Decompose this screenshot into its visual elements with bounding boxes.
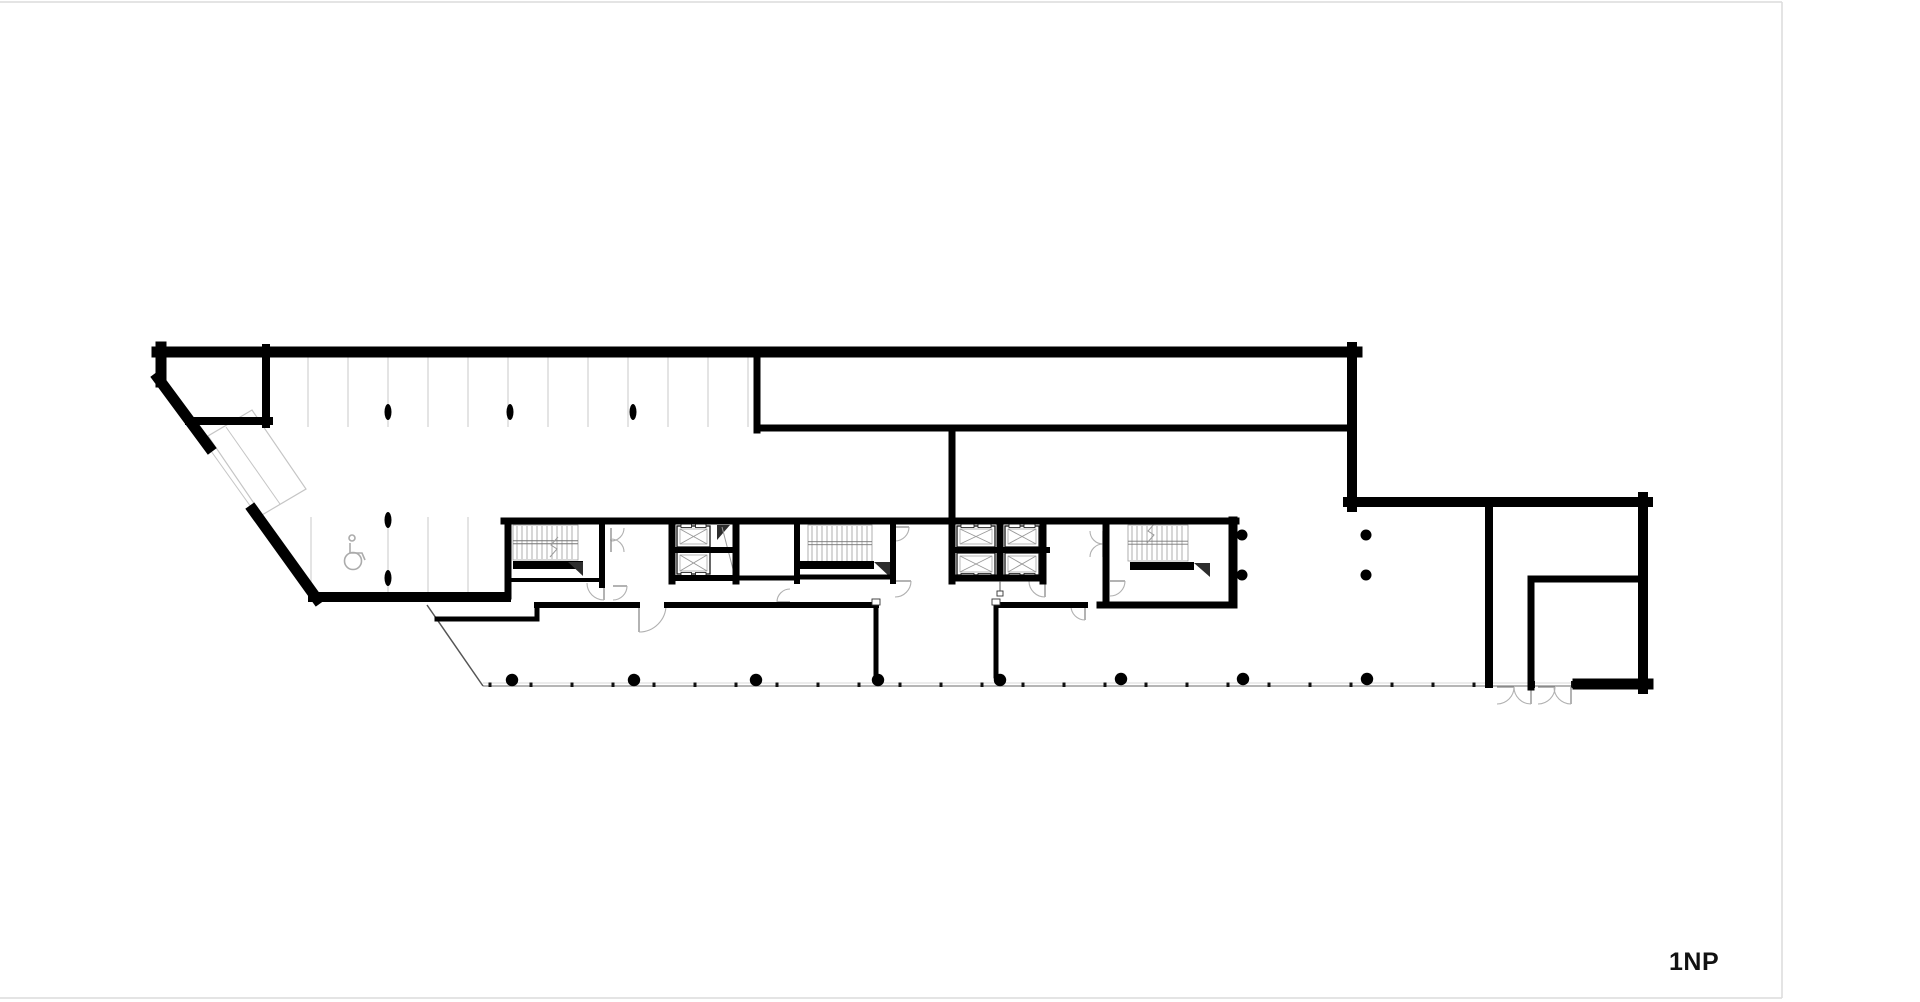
door-swing-arc — [1554, 687, 1571, 704]
facade-mullion-tick — [1391, 683, 1394, 688]
door-swing-arc — [639, 605, 666, 632]
door-swing-arc — [1071, 606, 1085, 620]
facade-mullion-tick — [530, 683, 533, 688]
facade-mullion-tick — [1022, 683, 1025, 688]
interior-column — [1237, 530, 1248, 541]
elevator-shaft — [957, 553, 995, 578]
facade-column — [1237, 673, 1249, 685]
stair-cut-band — [797, 561, 874, 569]
facade-mullion-tick — [1432, 683, 1435, 688]
facade-mullion-tick — [858, 683, 861, 688]
parking-column — [385, 512, 392, 528]
wall-end-post — [872, 599, 880, 605]
parking-column — [507, 404, 514, 420]
wall-segment — [158, 378, 209, 447]
door — [1554, 687, 1571, 704]
facade-column — [1115, 673, 1127, 685]
door-swing-arc — [895, 527, 909, 541]
door — [1497, 687, 1514, 704]
interior-column — [1237, 570, 1248, 581]
facade-column — [750, 674, 762, 686]
wheelchair-body — [350, 543, 365, 560]
facade-mullion-tick — [981, 683, 984, 688]
door-swing-arc — [1090, 544, 1103, 557]
stair-direction-wedge — [1194, 563, 1210, 577]
elevator-shaft — [677, 524, 710, 548]
facade-column — [994, 674, 1006, 686]
door — [777, 589, 790, 602]
elevator-shaft — [677, 552, 710, 577]
ramp-opening-line — [206, 444, 256, 514]
door — [1071, 606, 1085, 620]
door-swing-arc — [613, 586, 627, 600]
facade-mullion-tick — [899, 683, 902, 688]
stair-core — [1128, 525, 1188, 561]
floor-plan-drawing — [0, 0, 1920, 1002]
facade-mullion-tick — [1473, 683, 1476, 688]
facade-mullion-tick — [1227, 683, 1230, 688]
door — [639, 605, 666, 632]
stair-core — [513, 525, 578, 560]
facade-mullion-tick — [489, 683, 492, 688]
wheelchair-head — [349, 535, 355, 541]
facade-mullion-tick — [1268, 683, 1271, 688]
wheelchair-accessible-icon — [345, 535, 366, 570]
elevator-shaft — [957, 524, 995, 548]
facade-mullion-tick — [735, 683, 738, 688]
door — [895, 581, 911, 597]
door — [1538, 687, 1555, 704]
door-swing-arc — [1090, 531, 1103, 544]
door-swing-arc — [1538, 687, 1555, 704]
facade-column — [872, 674, 884, 686]
stair-outline — [808, 525, 872, 562]
door — [613, 586, 627, 600]
ramp-layer — [206, 410, 306, 515]
facade-column — [506, 674, 518, 686]
walls-layer — [157, 347, 1648, 689]
ramp-outline — [208, 410, 306, 515]
interior-column — [1361, 530, 1372, 541]
facade-mullion-tick — [1350, 683, 1353, 688]
wheelchair-wheel — [345, 553, 362, 570]
facade-mullion-tick — [571, 683, 574, 688]
facade-mullion-tick — [817, 683, 820, 688]
wall-end-post — [997, 591, 1003, 596]
parking-column — [630, 404, 637, 420]
door — [1090, 531, 1103, 544]
stair-outline — [513, 525, 578, 560]
door-swing-arc — [777, 589, 790, 602]
page-sheet: 1NP — [0, 0, 1920, 1002]
facade-mullion-tick — [1145, 683, 1148, 688]
floor-level-label: 1NP — [1669, 948, 1719, 977]
wall-end-post — [992, 599, 1000, 605]
parking-column — [385, 404, 392, 420]
door-swing-arc — [1497, 687, 1514, 704]
columns-layer — [385, 404, 1374, 686]
stair-break-line — [1147, 523, 1155, 543]
stair-core — [808, 525, 872, 562]
door-swing-arc — [1110, 581, 1125, 596]
door — [1090, 544, 1103, 557]
parking-column — [385, 570, 392, 586]
facade-mullion-tick — [1309, 683, 1312, 688]
interior-column — [1361, 570, 1372, 581]
elevator-shaft — [1005, 553, 1039, 578]
door — [895, 527, 909, 541]
door — [1110, 581, 1125, 596]
facade-mullion-tick — [1063, 683, 1066, 688]
elevator-shaft — [1005, 524, 1039, 548]
facade-mullion-tick — [940, 683, 943, 688]
stair-cut-band — [1130, 562, 1194, 570]
facade-column — [628, 674, 640, 686]
facade-mullion-tick — [694, 683, 697, 688]
facade-mullion-tick — [776, 683, 779, 688]
facade-mullion-tick — [1186, 683, 1189, 688]
facade-mullion-tick — [612, 683, 615, 688]
door-swing-arc — [895, 581, 911, 597]
wall-segment — [253, 510, 317, 599]
facade-mullion-tick — [1104, 683, 1107, 688]
facade-column — [1361, 673, 1373, 685]
facade-mullion-tick — [653, 683, 656, 688]
